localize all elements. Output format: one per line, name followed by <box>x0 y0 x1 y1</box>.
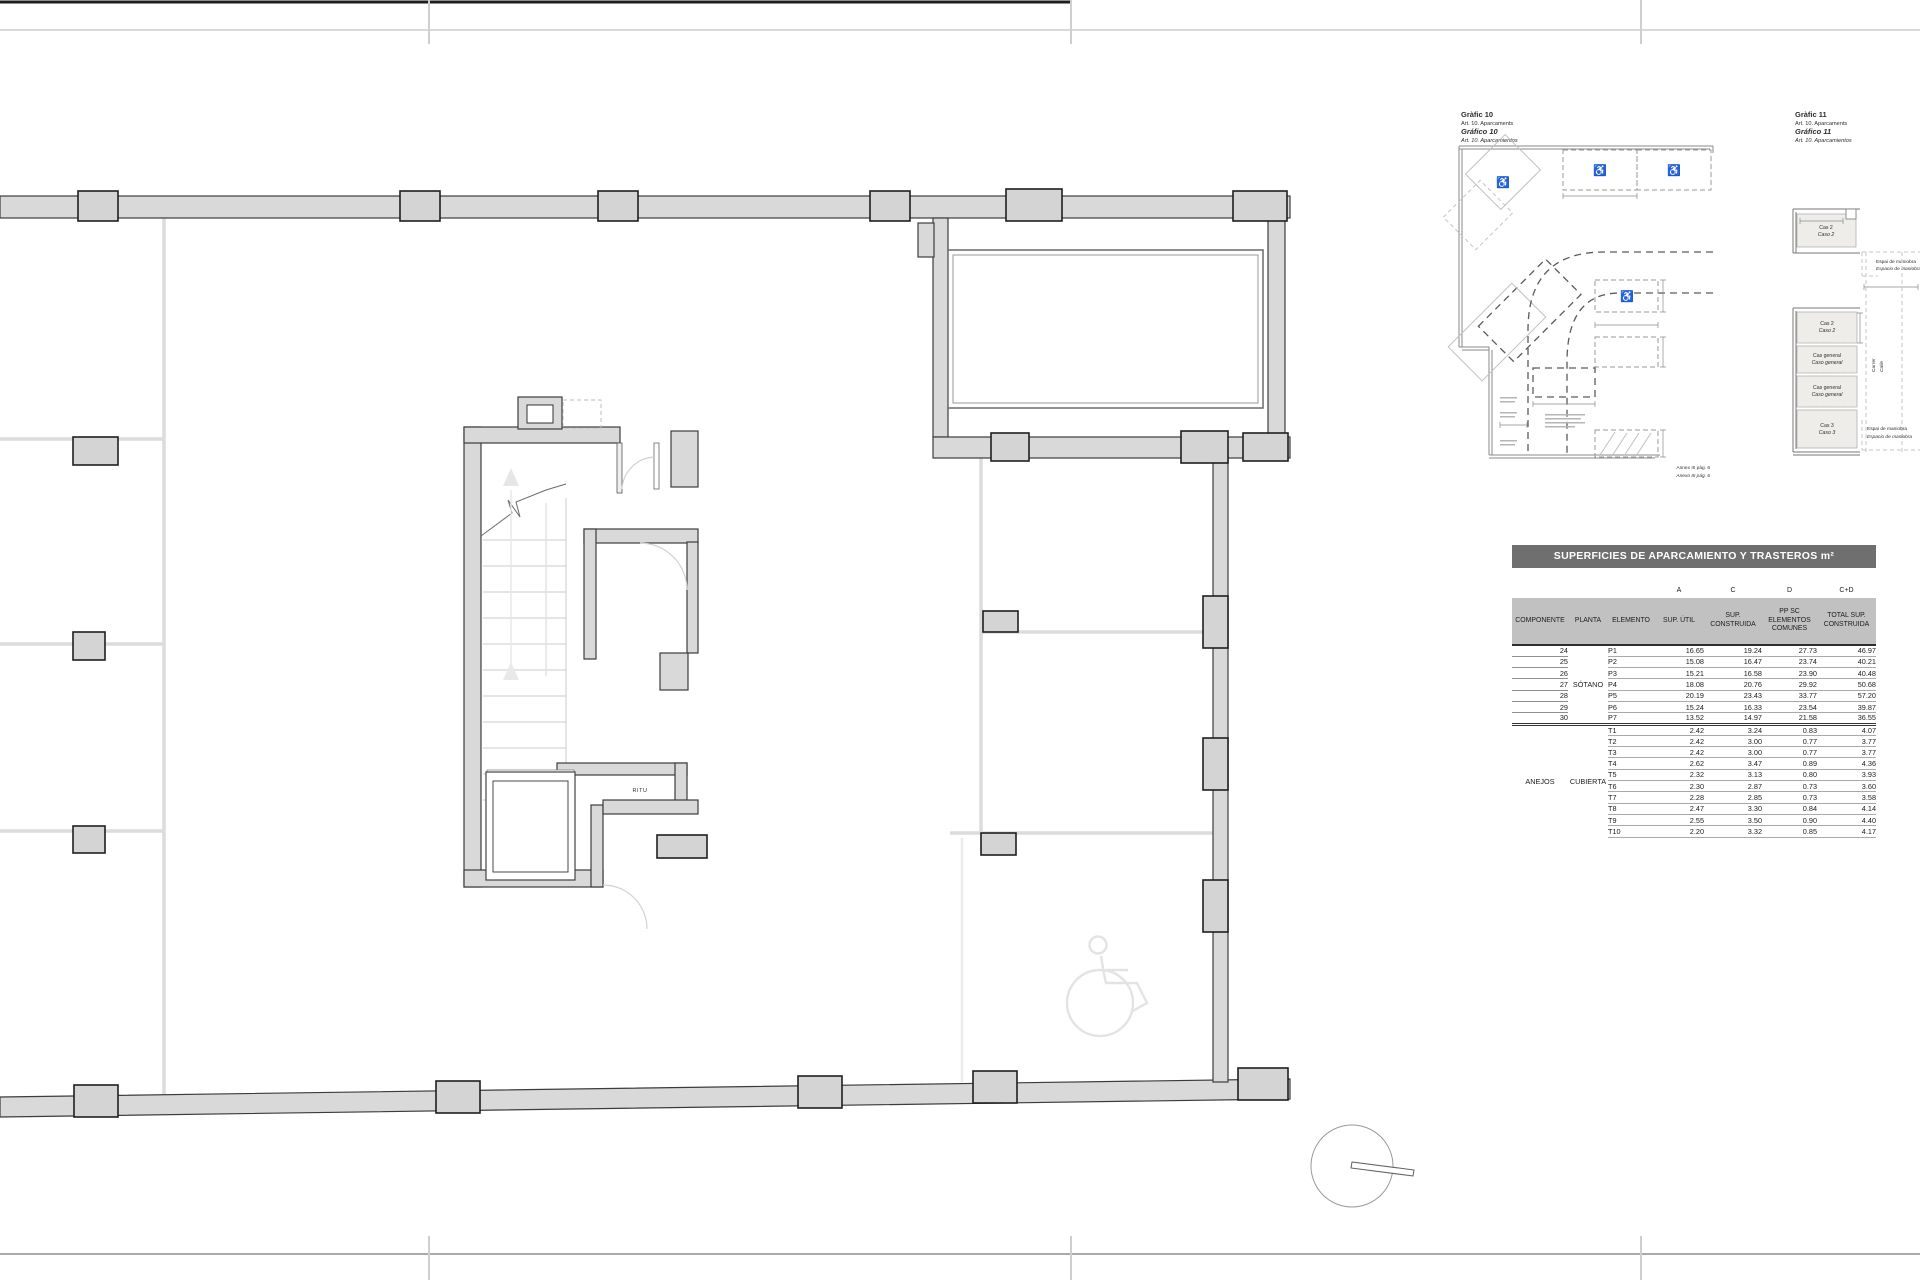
table-cell: 16.47 <box>1704 656 1762 667</box>
grafico11-title-es: Gráfico 11 <box>1795 127 1831 136</box>
table-cell: 2.30 <box>1654 781 1704 792</box>
table-cell: T9 <box>1608 814 1654 825</box>
table-cell: 40.48 <box>1817 668 1876 679</box>
table-cell: 3.00 <box>1704 747 1762 758</box>
ramp-pit <box>948 250 1263 408</box>
grafico10-title-es: Gráfico 10 <box>1461 127 1499 136</box>
grafico11-title-ca: Gràfic 11 <box>1795 110 1827 119</box>
table-cell: 4.40 <box>1817 814 1876 825</box>
table-cell: 2.87 <box>1704 781 1762 792</box>
stair-break-line <box>481 484 566 536</box>
table-cell: 14.97 <box>1704 713 1762 724</box>
table-cell: 30 <box>1512 713 1568 724</box>
letter-cd: C+D <box>1817 568 1876 598</box>
table-row: ANEJOSCUBIERTAT12.423.240.834.07 <box>1512 724 1876 735</box>
table-cell: CUBIERTA <box>1568 724 1608 837</box>
table-cell: P4 <box>1608 679 1654 690</box>
table-cell: 2.47 <box>1654 803 1704 814</box>
table-cell: 13.52 <box>1654 713 1704 724</box>
table-row: 28P520.1923.4333.7757.20 <box>1512 690 1876 701</box>
grafico11-article-es: Art. 10. Aparcamientos <box>1794 138 1852 144</box>
table-cell: 39.87 <box>1817 701 1876 712</box>
table-row: 24SÓTANOP116.6519.2427.7346.97 <box>1512 645 1876 656</box>
table-row: 25P215.0816.4723.7440.21 <box>1512 656 1876 667</box>
table-cell: 16.65 <box>1654 645 1704 656</box>
grafico10-annex-ca: Annex III pàg. 6 <box>1676 465 1710 471</box>
table-cell: P6 <box>1608 701 1654 712</box>
table-cell: 3.77 <box>1817 747 1876 758</box>
maneuver-label-ca: Espai de maniobra <box>1867 426 1907 432</box>
header-pp-sc: PP SC ELEMENTOS COMUNES <box>1762 598 1817 645</box>
grafico10-annex-es: Anexo III pág. 6 <box>1675 473 1710 479</box>
table-cell: 2.32 <box>1654 769 1704 780</box>
case2-label-es: Caso 2 <box>1819 328 1836 334</box>
case-general-label-ca: Cas general <box>1813 385 1841 391</box>
wheelchair-icon: ♿ <box>1496 176 1510 189</box>
table-cell: 15.21 <box>1654 668 1704 679</box>
grafico-10: Gràfic 10 Art. 10. Aparcaments Gráfico 1… <box>1443 110 1713 479</box>
table-cell: 24 <box>1512 645 1568 656</box>
table-cell: 2.42 <box>1654 724 1704 735</box>
header-sup-construida: SUP. CONSTRUIDA <box>1704 598 1762 645</box>
table-cell: 3.13 <box>1704 769 1762 780</box>
elevator <box>464 763 687 887</box>
table-cell: T4 <box>1608 758 1654 769</box>
table-cell: SÓTANO <box>1568 645 1608 724</box>
header-elemento: ELEMENTO <box>1608 598 1654 645</box>
table-cell: 3.50 <box>1704 814 1762 825</box>
stair-direction-arrow <box>503 468 519 486</box>
table-cell: 3.00 <box>1704 735 1762 746</box>
maneuver-label-ca: Espai de maniobra <box>1876 259 1916 265</box>
table-cell: P2 <box>1608 656 1654 667</box>
case-general-label-es: Caso general <box>1812 360 1844 366</box>
table-cell: 0.77 <box>1762 735 1817 746</box>
table-cell: 0.90 <box>1762 814 1817 825</box>
table-cell: 0.77 <box>1762 747 1817 758</box>
table-cell: 16.58 <box>1704 668 1762 679</box>
table-cell: T6 <box>1608 781 1654 792</box>
table-row: 27P418.0820.7629.9250.68 <box>1512 679 1876 690</box>
grafico10-title-ca: Gràfic 10 <box>1461 110 1493 119</box>
table-cell: 40.21 <box>1817 656 1876 667</box>
table-cell: P7 <box>1608 713 1654 724</box>
table-cell: 46.97 <box>1817 645 1876 656</box>
table-cell: 20.76 <box>1704 679 1762 690</box>
table-cell: T2 <box>1608 735 1654 746</box>
maneuver-label-es: Espacio de maniobra <box>1876 266 1920 272</box>
north-compass <box>1311 1125 1414 1207</box>
grafico-11: Gràfic 11 Art. 10. Aparcaments Gráfico 1… <box>1793 110 1920 455</box>
stairwell: RITU <box>464 397 707 929</box>
table-cell: 20.19 <box>1654 690 1704 701</box>
table-cell: 3.47 <box>1704 758 1762 769</box>
street-label-es: Calle <box>1879 361 1885 372</box>
table-cell: T5 <box>1608 769 1654 780</box>
stairs <box>481 468 566 800</box>
table-cell: 3.77 <box>1817 735 1876 746</box>
table-cell: 19.24 <box>1704 645 1762 656</box>
letter-a: A <box>1654 568 1704 598</box>
table-cell: T10 <box>1608 826 1654 837</box>
case2-label-ca: Cas 2 <box>1820 321 1834 327</box>
free-column <box>657 835 707 858</box>
table-cell: 0.84 <box>1762 803 1817 814</box>
table-cell: P5 <box>1608 690 1654 701</box>
table-cell: 23.74 <box>1762 656 1817 667</box>
table-cell: 2.42 <box>1654 735 1704 746</box>
table-cell: 4.14 <box>1817 803 1876 814</box>
table-cell: 0.80 <box>1762 769 1817 780</box>
table-cell: 0.83 <box>1762 724 1817 735</box>
table-cell: 15.24 <box>1654 701 1704 712</box>
wheelchair-icon <box>1067 937 1147 1037</box>
table-cell: 0.85 <box>1762 826 1817 837</box>
drawing-sheet: RITU Gràfic 10 Art. 10. Aparcaments Gráf… <box>0 0 1920 1280</box>
case2-label-es: Caso 2 <box>1818 232 1835 238</box>
table-cell: 2.28 <box>1654 792 1704 803</box>
header-componente: COMPONENTE <box>1512 598 1568 645</box>
wheelchair-icon: ♿ <box>1620 290 1634 303</box>
table-cell: 21.58 <box>1762 713 1817 724</box>
shaft-vent <box>527 405 553 423</box>
table-cell: T8 <box>1608 803 1654 814</box>
table-cell: 0.89 <box>1762 758 1817 769</box>
table-cell: 26 <box>1512 668 1568 679</box>
table-cell: 23.43 <box>1704 690 1762 701</box>
case-general-label-es: Caso general <box>1812 392 1844 398</box>
table-cell: P3 <box>1608 668 1654 679</box>
table-cell: 33.77 <box>1762 690 1817 701</box>
table-cell: 2.42 <box>1654 747 1704 758</box>
table-cell: 3.58 <box>1817 792 1876 803</box>
table-cell: 23.54 <box>1762 701 1817 712</box>
table-cell: 4.17 <box>1817 826 1876 837</box>
table-cell: 0.73 <box>1762 781 1817 792</box>
table-row: 26P315.2116.5823.9040.48 <box>1512 668 1876 679</box>
maneuver-label-es: Espacio de maniobra <box>1867 434 1912 440</box>
column-letter-row: A C D C+D <box>1512 568 1876 598</box>
table-cell: 29.92 <box>1762 679 1817 690</box>
table-cell: 27 <box>1512 679 1568 690</box>
case3-label-ca: Cas 3 <box>1820 423 1834 429</box>
table-cell: 2.20 <box>1654 826 1704 837</box>
wheelchair-icon: ♿ <box>1593 164 1607 177</box>
floor-plan: RITU <box>0 189 1414 1207</box>
table-cell: 4.07 <box>1817 724 1876 735</box>
case-general-label-ca: Cas general <box>1813 353 1841 359</box>
table-cell: 16.33 <box>1704 701 1762 712</box>
table-cell: T1 <box>1608 724 1654 735</box>
table-cell: 23.90 <box>1762 668 1817 679</box>
table-cell: 3.24 <box>1704 724 1762 735</box>
letter-c: C <box>1704 568 1762 598</box>
table-cell: 2.85 <box>1704 792 1762 803</box>
case2-label-ca: Cas 2 <box>1819 225 1833 231</box>
table-cell: 27.73 <box>1762 645 1817 656</box>
header-sup-util: SUP. ÚTIL <box>1654 598 1704 645</box>
table-cell: 2.62 <box>1654 758 1704 769</box>
table-cell: 36.55 <box>1817 713 1876 724</box>
table-cell: T7 <box>1608 792 1654 803</box>
case3-label-es: Caso 3 <box>1819 430 1836 436</box>
parking-surfaces-table: SUPERFICIES DE APARCAMIENTO Y TRASTEROS … <box>1512 545 1876 838</box>
table-cell: 29 <box>1512 701 1568 712</box>
table-cell: 4.36 <box>1817 758 1876 769</box>
table-cell: 3.30 <box>1704 803 1762 814</box>
table-cell: 18.08 <box>1654 679 1704 690</box>
table-title: SUPERFICIES DE APARCAMIENTO Y TRASTEROS … <box>1512 545 1876 568</box>
table-cell: T3 <box>1608 747 1654 758</box>
table-cell: 50.68 <box>1817 679 1876 690</box>
wheelchair-icon: ♿ <box>1667 164 1681 177</box>
table-cell: ANEJOS <box>1512 724 1568 837</box>
table-cell: 3.32 <box>1704 826 1762 837</box>
letter-d: D <box>1762 568 1817 598</box>
header-planta: PLANTA <box>1568 598 1608 645</box>
table-cell: 28 <box>1512 690 1568 701</box>
table-body: 24SÓTANOP116.6519.2427.7346.9725P215.081… <box>1512 645 1876 837</box>
table-cell: 25 <box>1512 656 1568 667</box>
table-cell: 15.08 <box>1654 656 1704 667</box>
table-row: 30P713.5214.9721.5836.55 <box>1512 713 1876 724</box>
table-cell: 2.55 <box>1654 814 1704 825</box>
ritu-room-label: RITU <box>633 788 648 794</box>
table-cell: 3.60 <box>1817 781 1876 792</box>
table-header-row: COMPONENTE PLANTA ELEMENTO SUP. ÚTIL SUP… <box>1512 598 1876 645</box>
table-cell: 3.93 <box>1817 769 1876 780</box>
table-cell: 57.20 <box>1817 690 1876 701</box>
street-label-ca: Carrer <box>1871 358 1877 372</box>
table-cell: P1 <box>1608 645 1654 656</box>
header-total-sup: TOTAL SUP. CONSTRUIDA <box>1817 598 1876 645</box>
table-row: 29P615.2416.3323.5439.87 <box>1512 701 1876 712</box>
table-cell: 0.73 <box>1762 792 1817 803</box>
